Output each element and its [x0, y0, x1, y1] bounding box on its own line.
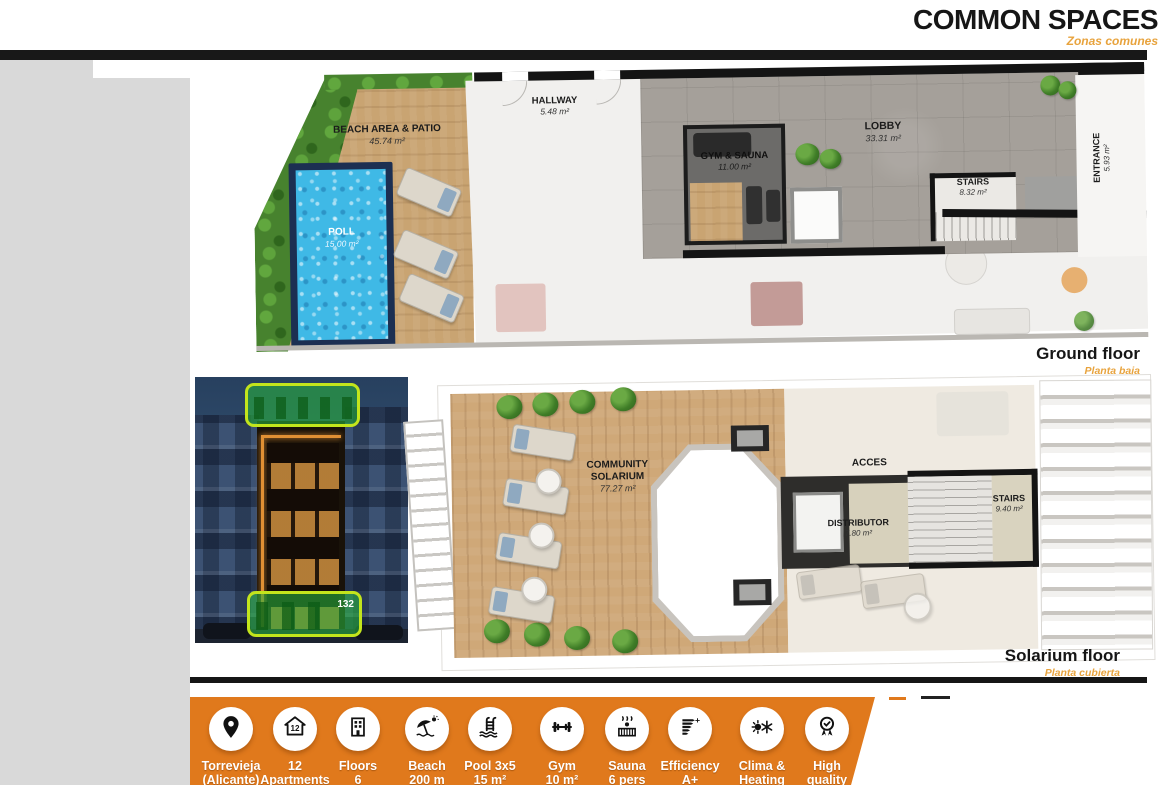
ground-floor-caption: Ground floor Planta baja — [940, 344, 1140, 377]
floors-icon — [345, 714, 371, 745]
lobby-label: LOBBY 33.31 m² — [833, 119, 933, 144]
elevator — [790, 187, 843, 244]
clima-icon — [749, 714, 775, 745]
building-photo: 132 — [195, 377, 408, 643]
top-right-wall — [1078, 62, 1144, 75]
feature-quality: Highquality — [789, 707, 865, 785]
lounger-pillow — [864, 583, 880, 605]
lounger-pillow — [439, 293, 460, 318]
stair-treads — [908, 476, 993, 563]
gym-machine — [746, 186, 763, 224]
stairs-right-wall — [1031, 469, 1039, 567]
door-gap — [594, 70, 620, 79]
gym-label: GYM & SAUNA 11.00 m² — [683, 150, 785, 173]
planter-box — [731, 425, 769, 452]
bed-furniture — [750, 281, 803, 326]
solarium-floor-caption: Solarium floor Planta cubierta — [920, 646, 1120, 679]
highlight-roof-overlay — [245, 383, 360, 427]
stairs-label: STAIRS 8.32 m² — [930, 176, 1016, 198]
planter-inner — [739, 584, 765, 600]
pool — [288, 162, 395, 348]
lounger-pillow — [499, 536, 515, 558]
faded-furniture — [936, 391, 1009, 436]
svg-text:+: + — [695, 715, 700, 725]
ground-floor-plan: POLL 15.00 m² BEACH AREA & PATIO 45.74 m… — [252, 62, 1148, 358]
house-number: 132 — [337, 599, 354, 610]
beach-area-label: BEACH AREA & PATIO 45.74 m² — [307, 123, 467, 148]
gray-gutter-step — [0, 60, 93, 78]
location-pin-icon — [218, 714, 244, 745]
door-gap — [502, 72, 528, 81]
parked-car — [203, 623, 251, 639]
solarium-floor-plan: COMMUNITY SOLARIUM 77.27 m² ACCES DISTRI… — [437, 374, 1155, 671]
efficiency-icon: + — [677, 714, 703, 745]
walkway — [1025, 176, 1082, 211]
orange-dash — [889, 697, 906, 700]
bed-furniture — [495, 283, 546, 332]
lounger-pillow — [434, 249, 455, 274]
parked-car — [355, 625, 403, 640]
roof-silhouette — [254, 397, 354, 419]
planter-box — [733, 579, 771, 606]
octagon-inner — [656, 449, 779, 637]
feature-floors: Floors6 — [320, 707, 396, 785]
brochure-page: COMMON SPACES Zonas comunes POLL 15.00 m… — [0, 0, 1170, 785]
lounger-pillow — [514, 428, 530, 450]
octagon-skylight — [650, 443, 785, 643]
planter-inner — [737, 430, 763, 446]
apartments-icon: 12 — [282, 714, 308, 745]
sauna-icon — [614, 714, 640, 745]
pool-icon — [477, 714, 503, 745]
pergola-slats — [1039, 379, 1153, 650]
lounger-pillow — [437, 187, 458, 212]
distributor-label: DISTRIBUTOR 7.80 m² — [813, 517, 903, 539]
page-subtitle: Zonas comunes — [1067, 34, 1158, 48]
sofa-furniture — [954, 308, 1030, 335]
header-black-bar — [0, 50, 1147, 60]
feature-pool: Pool 3x515 m² — [452, 707, 528, 785]
lounger-pillow — [507, 482, 523, 504]
gym-icon — [549, 714, 575, 745]
highlight-ground-overlay: 132 — [247, 591, 362, 637]
storefront-silhouette — [256, 602, 334, 630]
features-bar: Torrevieja(Alicante) 12 12Apartments Flo… — [190, 697, 875, 785]
entrance-label: ENTRANCE 5.93 m² — [1090, 92, 1126, 223]
svg-text:12: 12 — [290, 723, 300, 732]
acces-label: ACCES — [834, 457, 904, 470]
lounger-pillow — [800, 574, 816, 596]
stairs-label: STAIRS 9.40 m² — [978, 493, 1040, 514]
gym-machine — [766, 190, 781, 222]
feature-efficiency: + EfficiencyA+ — [652, 707, 728, 785]
garden-top-strip — [324, 73, 472, 90]
page-title: COMMON SPACES — [913, 4, 1158, 36]
stairs-landing — [992, 475, 1037, 562]
gray-gutter — [0, 78, 190, 785]
gym-sauna-room — [683, 124, 787, 246]
lounger-pillow — [492, 591, 508, 613]
facade-light-strip — [261, 435, 341, 438]
sauna-bench — [690, 182, 743, 241]
pool-label: POLL 15.00 m² — [294, 226, 388, 250]
beach-icon — [414, 714, 440, 745]
hallway-label: HALLWAY 5.48 m² — [504, 94, 604, 117]
pergola-ladder — [403, 419, 457, 631]
quality-icon — [814, 714, 840, 745]
black-dash — [921, 696, 950, 699]
footer-black-bar — [190, 677, 1147, 683]
